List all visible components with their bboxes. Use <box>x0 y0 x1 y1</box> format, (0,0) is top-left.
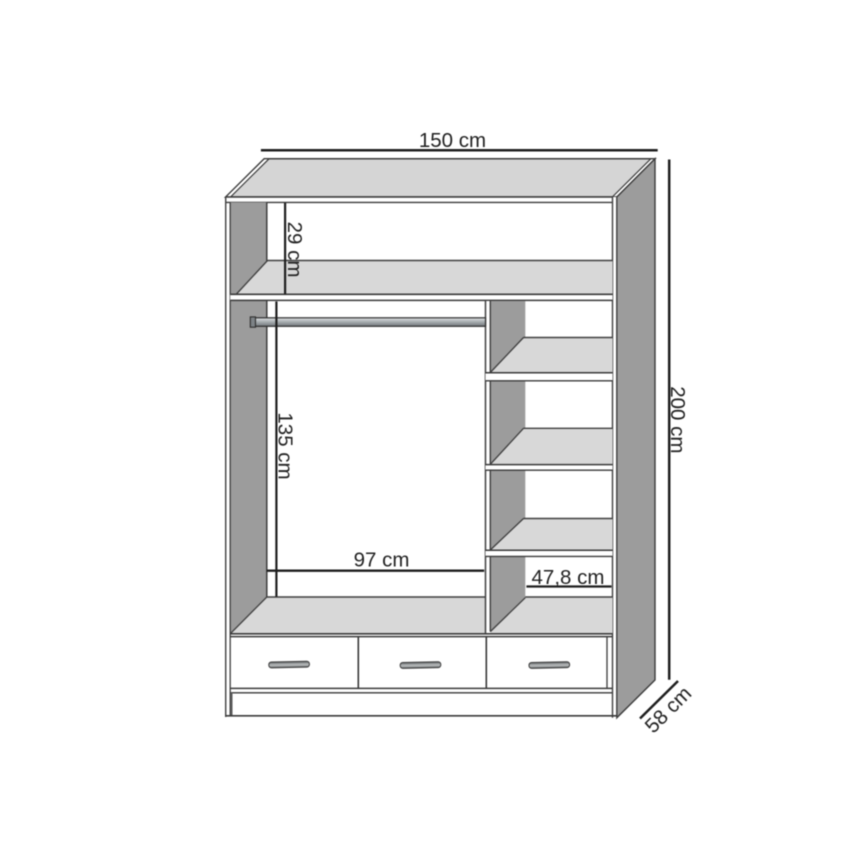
svg-text:200 cm: 200 cm <box>666 386 689 453</box>
svg-text:150 cm: 150 cm <box>419 129 486 152</box>
svg-text:47,8 cm: 47,8 cm <box>532 566 605 589</box>
svg-text:135 cm: 135 cm <box>274 412 297 479</box>
svg-text:97 cm: 97 cm <box>354 549 410 572</box>
svg-text:29 cm: 29 cm <box>283 222 306 278</box>
